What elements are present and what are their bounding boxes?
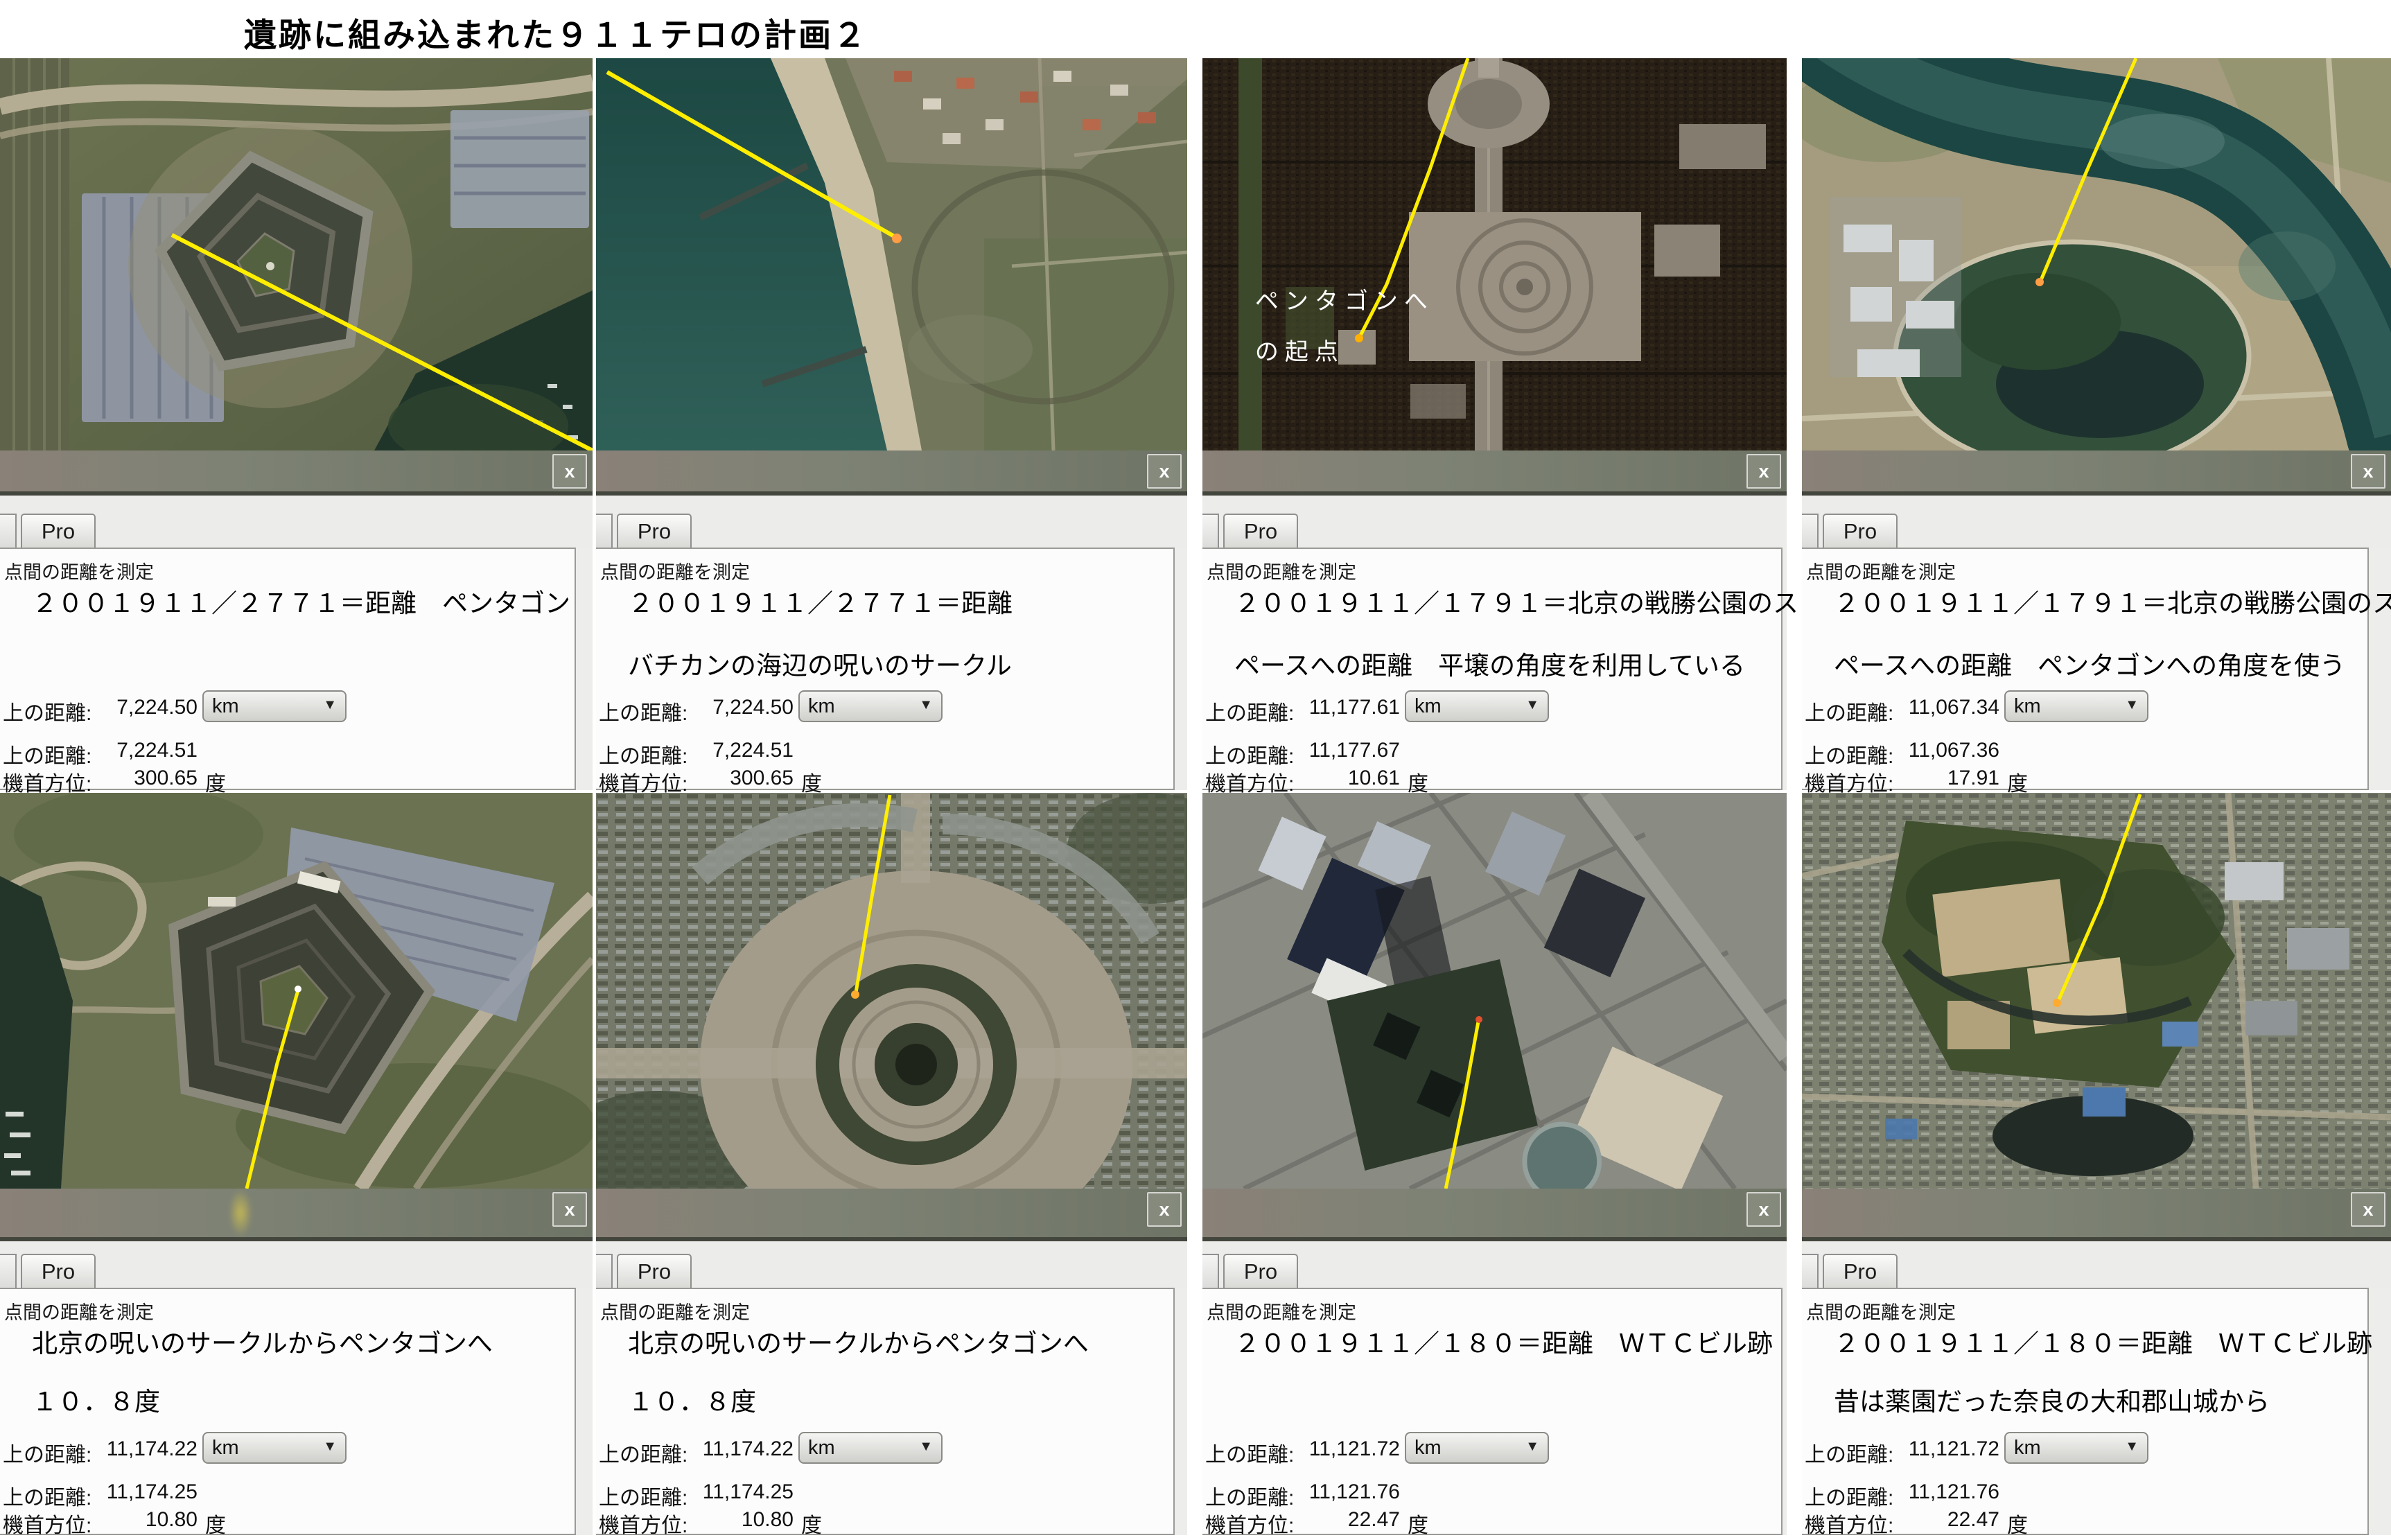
tool-title: 点間の距離を測定 [600, 557, 750, 584]
tab-row: Pro [596, 1241, 1187, 1288]
measure-panel: 点間の距離を測定 ２００１９１１／２７７１＝距離 バチカンの海辺の呪いのサークル… [596, 548, 1175, 790]
satellite-view-beijing-park[interactable]: ペンタゴンへ の起点 [1202, 58, 1787, 450]
tab-pro[interactable]: Pro [1223, 1254, 1298, 1288]
tab-partial[interactable] [596, 1254, 613, 1288]
degree-suffix: 度 [2007, 1508, 2028, 1539]
toolbar-strip: x [1802, 1189, 2391, 1241]
chevron-down-icon: ▼ [919, 1439, 933, 1455]
heading-value: 10.61 [1261, 767, 1400, 790]
tab-row: Pro [596, 496, 1187, 548]
map-annotation-line1: ペンタゴンへ [1255, 282, 1434, 316]
ge-window-circle-plaza: x Pro 点間の距離を測定 北京の呪いのサークルからペンタゴンへ １０．８度 … [596, 793, 1187, 1535]
map-distance-value: 11,121.72 [1861, 1437, 1999, 1461]
ge-window-vatican-coast: x Pro 点間の距離を測定 ２００１９１１／２７７１＝距離 バチカンの海辺の呪… [596, 58, 1187, 790]
tool-title: 点間の距離を測定 [4, 557, 154, 584]
tab-pro[interactable]: Pro [617, 1254, 692, 1288]
tab-pro[interactable]: Pro [21, 514, 96, 548]
close-button[interactable]: x [1147, 454, 1182, 489]
satellite-view-river-bend[interactable] [1802, 58, 2391, 450]
heading-value: 17.91 [1861, 767, 1999, 790]
measure-description-2: １０．８度 [32, 1381, 160, 1418]
tab-partial[interactable] [1802, 514, 1819, 548]
ground-distance-value: 11,174.25 [59, 1480, 198, 1504]
measure-description: 北京の呪いのサークルからペンタゴンへ [628, 1322, 1089, 1360]
measure-description-2: 昔は薬園だった奈良の大和郡山城から [1834, 1381, 2270, 1418]
tab-partial[interactable] [1202, 514, 1219, 548]
close-button[interactable]: x [552, 454, 587, 489]
close-icon: x [564, 1200, 575, 1219]
ground-distance-value: 7,224.51 [59, 739, 198, 762]
ge-window-pentagon-near: x Pro 点間の距離を測定 北京の呪いのサークルからペンタゴンへ １０．８度 … [0, 793, 593, 1535]
page-title: 遺跡に組み込まれた９１１テロの計画２ [244, 8, 868, 56]
close-icon: x [2363, 462, 2373, 481]
tool-title: 点間の距離を測定 [600, 1297, 750, 1324]
degree-suffix: 度 [1408, 1508, 1428, 1539]
satellite-view-wtc[interactable] [1202, 793, 1787, 1189]
map-annotation-line2: の起点 [1255, 333, 1345, 367]
toolbar-strip: x [1802, 450, 2391, 496]
ge-window-wtc-site: x Pro 点間の距離を測定 ２００１９１１／１８０＝距離 ＷＴＣビル跡 上の距… [1202, 793, 1787, 1535]
toolbar-strip: x [596, 450, 1187, 496]
chevron-down-icon: ▼ [1525, 697, 1539, 713]
tool-title: 点間の距離を測定 [1806, 557, 1956, 584]
measure-description-2: バチカンの海辺の呪いのサークル [628, 645, 1012, 682]
ground-distance-value: 11,121.76 [1261, 1480, 1400, 1504]
measure-panel: 点間の距離を測定 北京の呪いのサークルからペンタゴンへ １０．８度 上の距離: … [0, 1288, 576, 1535]
heading-value: 10.80 [655, 1508, 794, 1532]
satellite-view-pentagon[interactable] [0, 58, 593, 450]
unit-select[interactable]: km▼ [798, 1432, 943, 1464]
measure-description-2: ペースへの距離 平壌の角度を利用している [1234, 645, 1745, 682]
measure-panel: 点間の距離を測定 ２００１９１１／１８０＝距離 ＷＴＣビル跡 昔は薬園だった奈良… [1802, 1288, 2369, 1535]
measure-description-2: ペースへの距離 ペンタゴンへの角度を使う [1834, 645, 2345, 682]
satellite-view-pentagon-near[interactable] [0, 793, 593, 1189]
close-icon: x [1159, 462, 1169, 481]
ge-window-pentagon-far: x Pro 点間の距離を測定 ２００１９１１／２７７１＝距離 ペンタゴン 上の距… [0, 58, 593, 790]
ground-distance-value: 7,224.51 [655, 739, 794, 762]
tab-row: Pro [1202, 496, 1787, 548]
measure-panel: 点間の距離を測定 ２００１９１１／１７９１＝北京の戦勝公園のス ペースへの距離 … [1802, 548, 2369, 790]
tab-row: Pro [1802, 1241, 2391, 1288]
close-button[interactable]: x [1746, 454, 1781, 489]
chevron-down-icon: ▼ [2125, 1439, 2139, 1455]
tab-row: Pro [0, 496, 593, 548]
tool-title: 点間の距離を測定 [1806, 1297, 1956, 1324]
toolbar-strip: x [0, 1189, 593, 1241]
close-button[interactable]: x [1147, 1192, 1182, 1227]
tab-pro[interactable]: Pro [617, 514, 692, 548]
tab-pro[interactable]: Pro [1823, 1254, 1898, 1288]
unit-select[interactable]: km▼ [202, 690, 347, 722]
measure-description-2: １０．８度 [628, 1381, 756, 1418]
tool-title: 点間の距離を測定 [1207, 1297, 1356, 1324]
unit-select[interactable]: km▼ [798, 690, 943, 722]
measure-description: ２００１９１１／１８０＝距離 ＷＴＣビル跡 [1234, 1322, 1773, 1360]
heading-value: 22.47 [1861, 1508, 1999, 1532]
satellite-view-circle-plaza[interactable] [596, 793, 1187, 1189]
tab-row: Pro [1802, 496, 2391, 548]
measure-panel: 点間の距離を測定 ２００１９１１／１７９１＝北京の戦勝公園のス ペースへの距離 … [1202, 548, 1783, 790]
measure-description: 北京の呪いのサークルからペンタゴンへ [32, 1322, 493, 1360]
close-icon: x [1159, 1200, 1169, 1219]
ground-distance-value: 11,174.25 [655, 1480, 794, 1504]
map-distance-value: 11,174.22 [655, 1437, 794, 1461]
satellite-view-koriyama[interactable] [1802, 793, 2391, 1189]
tab-pro[interactable]: Pro [21, 1254, 96, 1288]
close-icon: x [2363, 1200, 2373, 1219]
map-distance-value: 11,174.22 [59, 1437, 198, 1461]
unit-select[interactable]: km▼ [2004, 1432, 2148, 1464]
unit-select[interactable]: km▼ [1405, 1432, 1549, 1464]
measure-panel: 点間の距離を測定 ２００１９１１／２７７１＝距離 ペンタゴン 上の距離: 7,2… [0, 548, 576, 790]
measure-description: ２００１９１１／２７７１＝距離 ペンタゴン [32, 582, 570, 620]
measure-description: ２００１９１１／１７９１＝北京の戦勝公園のス [1234, 582, 1798, 620]
heading-value: 22.47 [1261, 1508, 1400, 1532]
degree-suffix: 度 [205, 1508, 226, 1539]
unit-select[interactable]: km▼ [202, 1432, 347, 1464]
map-distance-value: 11,121.72 [1261, 1437, 1400, 1461]
measure-description: ２００１９１１／１７９１＝北京の戦勝公園のス [1834, 582, 2391, 620]
unit-select[interactable]: km▼ [2004, 690, 2148, 722]
measure-panel: 点間の距離を測定 ２００１９１１／１８０＝距離 ＷＴＣビル跡 上の距離: 11,… [1202, 1288, 1783, 1535]
heading-value: 10.80 [59, 1508, 198, 1532]
chevron-down-icon: ▼ [323, 1439, 337, 1455]
tab-partial[interactable] [596, 514, 613, 548]
heading-value: 300.65 [655, 767, 794, 790]
ground-distance-value: 11,067.36 [1861, 739, 1999, 762]
satellite-view-coast[interactable] [596, 58, 1187, 450]
tab-row: Pro [0, 1241, 593, 1288]
toolbar-strip: x [596, 1189, 1187, 1241]
map-distance-value: 11,177.61 [1261, 696, 1400, 719]
ground-distance-value: 11,177.67 [1261, 739, 1400, 762]
degree-suffix: 度 [801, 1508, 822, 1539]
map-distance-value: 7,224.50 [59, 696, 198, 719]
tool-title: 点間の距離を測定 [4, 1297, 154, 1324]
tab-partial[interactable] [0, 1254, 17, 1288]
measure-description: ２００１９１１／１８０＝距離 ＷＴＣビル跡 [1834, 1322, 2372, 1360]
tab-partial[interactable] [0, 514, 17, 548]
toolbar-strip: x [0, 450, 593, 496]
close-button[interactable]: x [2351, 454, 2385, 489]
tool-title: 点間の距離を測定 [1207, 557, 1356, 584]
close-icon: x [1758, 1200, 1769, 1219]
close-icon: x [1758, 462, 1769, 481]
unit-select[interactable]: km▼ [1405, 690, 1549, 722]
ge-window-river-bend: x Pro 点間の距離を測定 ２００１９１１／１７９１＝北京の戦勝公園のス ペー… [1802, 58, 2391, 790]
toolbar-strip: x [1202, 1189, 1787, 1241]
measure-line-glow [229, 1189, 252, 1237]
tab-partial[interactable] [1202, 1254, 1219, 1288]
close-button[interactable]: x [2351, 1192, 2385, 1227]
chevron-down-icon: ▼ [919, 697, 933, 713]
tab-pro[interactable]: Pro [1223, 514, 1298, 548]
map-distance-value: 7,224.50 [655, 696, 794, 719]
close-icon: x [564, 462, 575, 481]
measure-description: ２００１９１１／２７７１＝距離 [628, 582, 1013, 620]
chevron-down-icon: ▼ [2125, 697, 2139, 713]
tab-row: Pro [1202, 1241, 1787, 1288]
close-button[interactable]: x [552, 1192, 587, 1227]
ground-distance-value: 11,121.76 [1861, 1480, 1999, 1504]
chevron-down-icon: ▼ [1525, 1439, 1539, 1455]
ge-window-koriyama-castle: x Pro 点間の距離を測定 ２００１９１１／１８０＝距離 ＷＴＣビル跡 昔は薬… [1802, 793, 2391, 1535]
measure-panel: 点間の距離を測定 北京の呪いのサークルからペンタゴンへ １０．８度 上の距離: … [596, 1288, 1175, 1535]
ge-window-beijing-park: ペンタゴンへ の起点 x Pro 点間の距離を測定 ２００１９１１／１７９１＝北… [1202, 58, 1787, 790]
tab-pro[interactable]: Pro [1823, 514, 1898, 548]
close-button[interactable]: x [1746, 1192, 1781, 1227]
tab-partial[interactable] [1802, 1254, 1819, 1288]
chevron-down-icon: ▼ [323, 697, 337, 713]
heading-value: 300.65 [59, 767, 198, 790]
map-distance-value: 11,067.34 [1861, 696, 1999, 719]
toolbar-strip: x [1202, 450, 1787, 496]
